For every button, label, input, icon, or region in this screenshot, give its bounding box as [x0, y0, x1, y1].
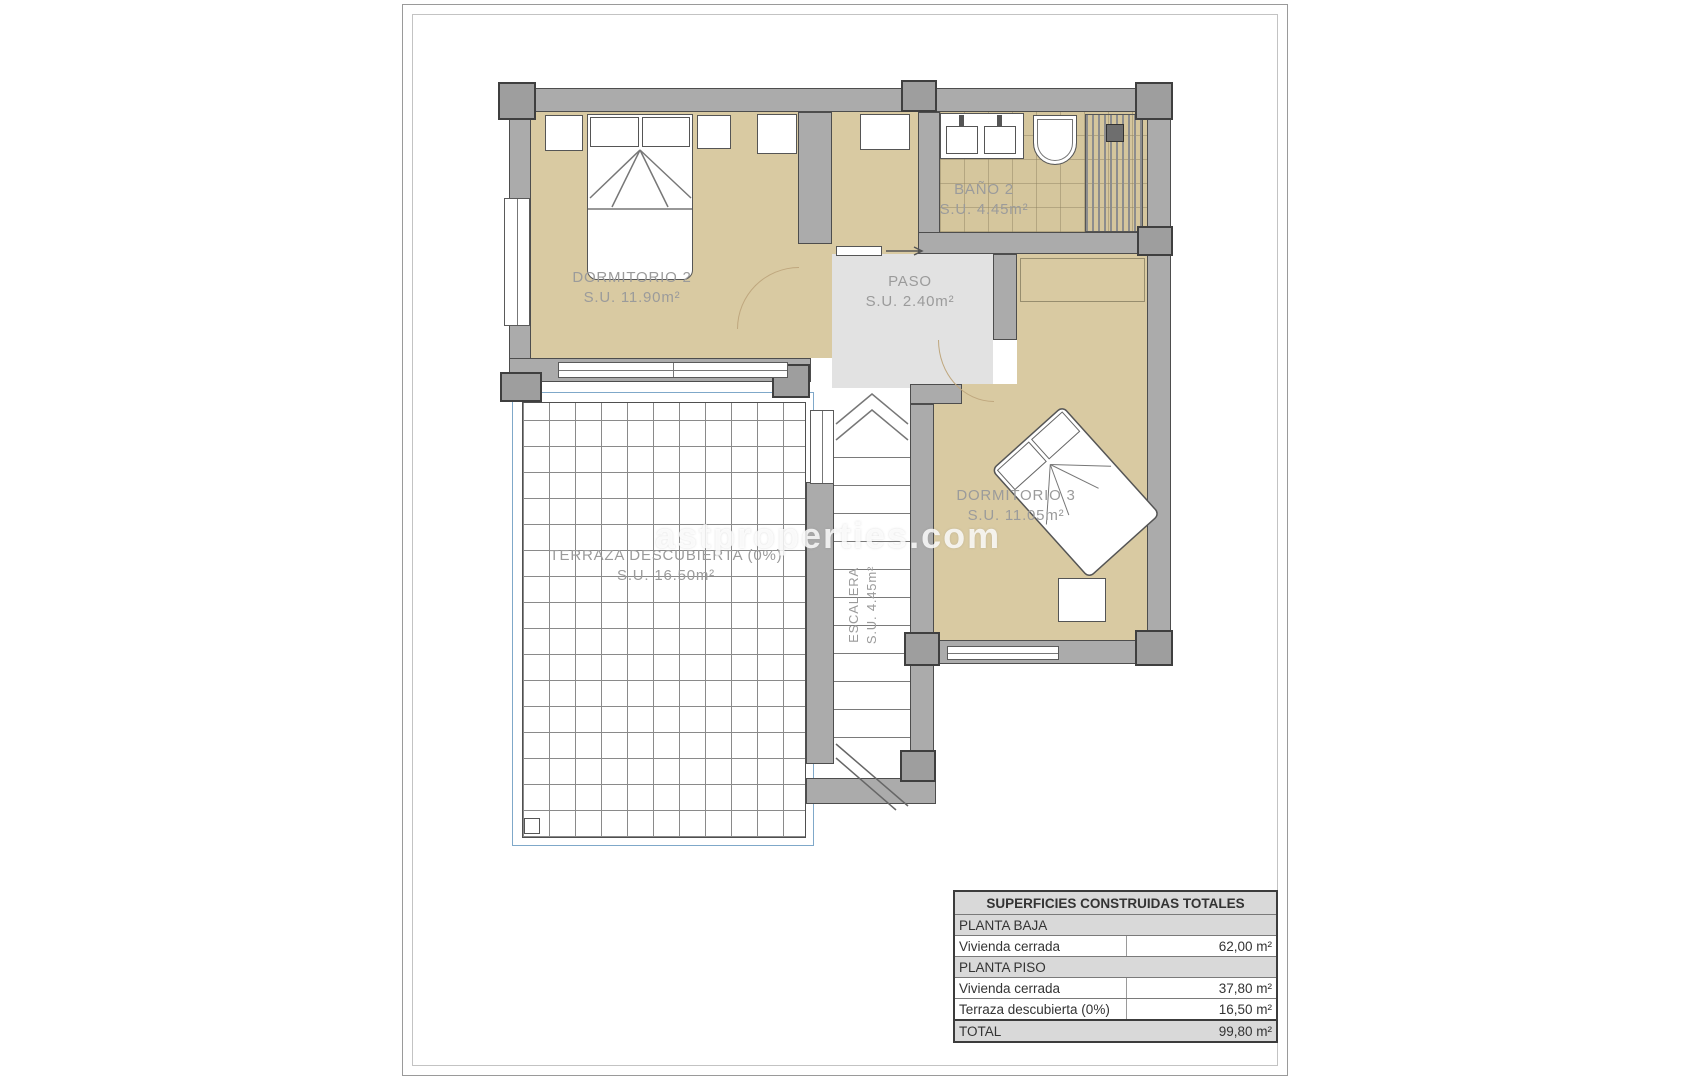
wall-right — [1147, 88, 1171, 664]
room-name: PASO — [840, 272, 980, 292]
room-area: S.U. 4.45m² — [914, 200, 1054, 220]
row-label: Vivienda cerrada — [955, 981, 1126, 996]
window-terraza-east — [810, 410, 834, 484]
room-area: S.U. 2.40m² — [840, 292, 980, 312]
window-dormitorio2-bottom — [558, 362, 788, 378]
terraza-grid — [522, 402, 806, 838]
room-name: BAÑO 2 — [914, 180, 1054, 200]
wall-bano-bottom — [918, 232, 1171, 254]
table-row: PLANTA PISO — [955, 956, 1276, 977]
wall-stub-dormitorio2 — [798, 112, 832, 244]
table-row: PLANTA BAJA — [955, 914, 1276, 935]
pillar-top-right — [1135, 82, 1173, 120]
row-value: 37,80 m² — [1126, 978, 1276, 998]
nightstand-dormitorio3 — [1058, 578, 1106, 622]
row-label: Vivienda cerrada — [955, 939, 1126, 954]
row-label: Terraza descubierta (0%) — [955, 1002, 1126, 1017]
wardrobe-dormitorio2 — [757, 114, 797, 154]
tap-1 — [959, 115, 964, 126]
pillow-dormitorio2-left — [590, 117, 639, 147]
room-area: S.U. 16.50m² — [546, 566, 786, 586]
pillar-stairs-bottom — [900, 750, 936, 782]
label-dormitorio2: DORMITORIO 2 S.U. 11.90m² — [512, 268, 752, 308]
watermark: astproperties.com — [655, 515, 1001, 557]
floor-plan-page: { "watermark": { "text": "astproperties.… — [0, 0, 1700, 1080]
summary-table: SUPERFICIES CONSTRUIDAS TOTALES PLANTA B… — [953, 890, 1278, 1043]
room-name: DORMITORIO 2 — [512, 268, 752, 288]
pillar-top-mid — [901, 80, 937, 112]
pillar-dormitorio3-bottom-left — [904, 632, 940, 666]
summary-table-title: SUPERFICIES CONSTRUIDAS TOTALES — [955, 892, 1276, 914]
row-value: 99,80 m² — [1127, 1024, 1276, 1039]
wall-dormitorio3-west-upper — [993, 254, 1017, 340]
table-row: Terraza descubierta (0%) 16,50 m² — [955, 998, 1276, 1019]
table-row-total: TOTAL 99,80 m² — [955, 1019, 1276, 1041]
nightstand-left — [545, 115, 583, 151]
window-dormitorio3-bottom — [947, 646, 1059, 660]
pillar-left-bottom — [500, 372, 542, 402]
label-bano2: BAÑO 2 S.U. 4.45m² — [914, 180, 1054, 220]
shower-head — [1106, 124, 1124, 142]
sink-1 — [946, 126, 978, 154]
label-paso: PASO S.U. 2.40m² — [840, 272, 980, 312]
sink-2 — [984, 126, 1016, 154]
room-area: S.U. 11.90m² — [512, 288, 752, 308]
pillow-dormitorio2-right — [642, 117, 690, 147]
wall-top — [509, 88, 1171, 112]
pillar-right-mid — [1137, 226, 1173, 256]
nightstand-right — [697, 115, 731, 149]
row-label: PLANTA BAJA — [955, 918, 1276, 933]
closet-nook — [860, 114, 910, 150]
row-label: PLANTA PISO — [955, 960, 1276, 975]
toilet — [1033, 115, 1077, 165]
row-value: 16,50 m² — [1126, 999, 1276, 1019]
tap-2 — [997, 115, 1002, 126]
wardrobe-dormitorio3 — [1020, 258, 1145, 302]
summary-table-title-text: SUPERFICIES CONSTRUIDAS TOTALES — [986, 896, 1244, 911]
sliding-door-bano — [836, 246, 882, 256]
terraza-corner-marker — [524, 818, 540, 834]
pillar-top-left — [498, 82, 536, 120]
room-name: DORMITORIO 3 — [896, 486, 1136, 506]
pillar-bottom-right — [1135, 630, 1173, 666]
row-value: 62,00 m² — [1126, 936, 1276, 956]
wall-paso-nib — [910, 384, 962, 404]
wall-dormitorio3-west-lower — [910, 404, 934, 764]
table-row: Vivienda cerrada 62,00 m² — [955, 935, 1276, 956]
row-label: TOTAL — [955, 1024, 1127, 1039]
table-row: Vivienda cerrada 37,80 m² — [955, 977, 1276, 998]
